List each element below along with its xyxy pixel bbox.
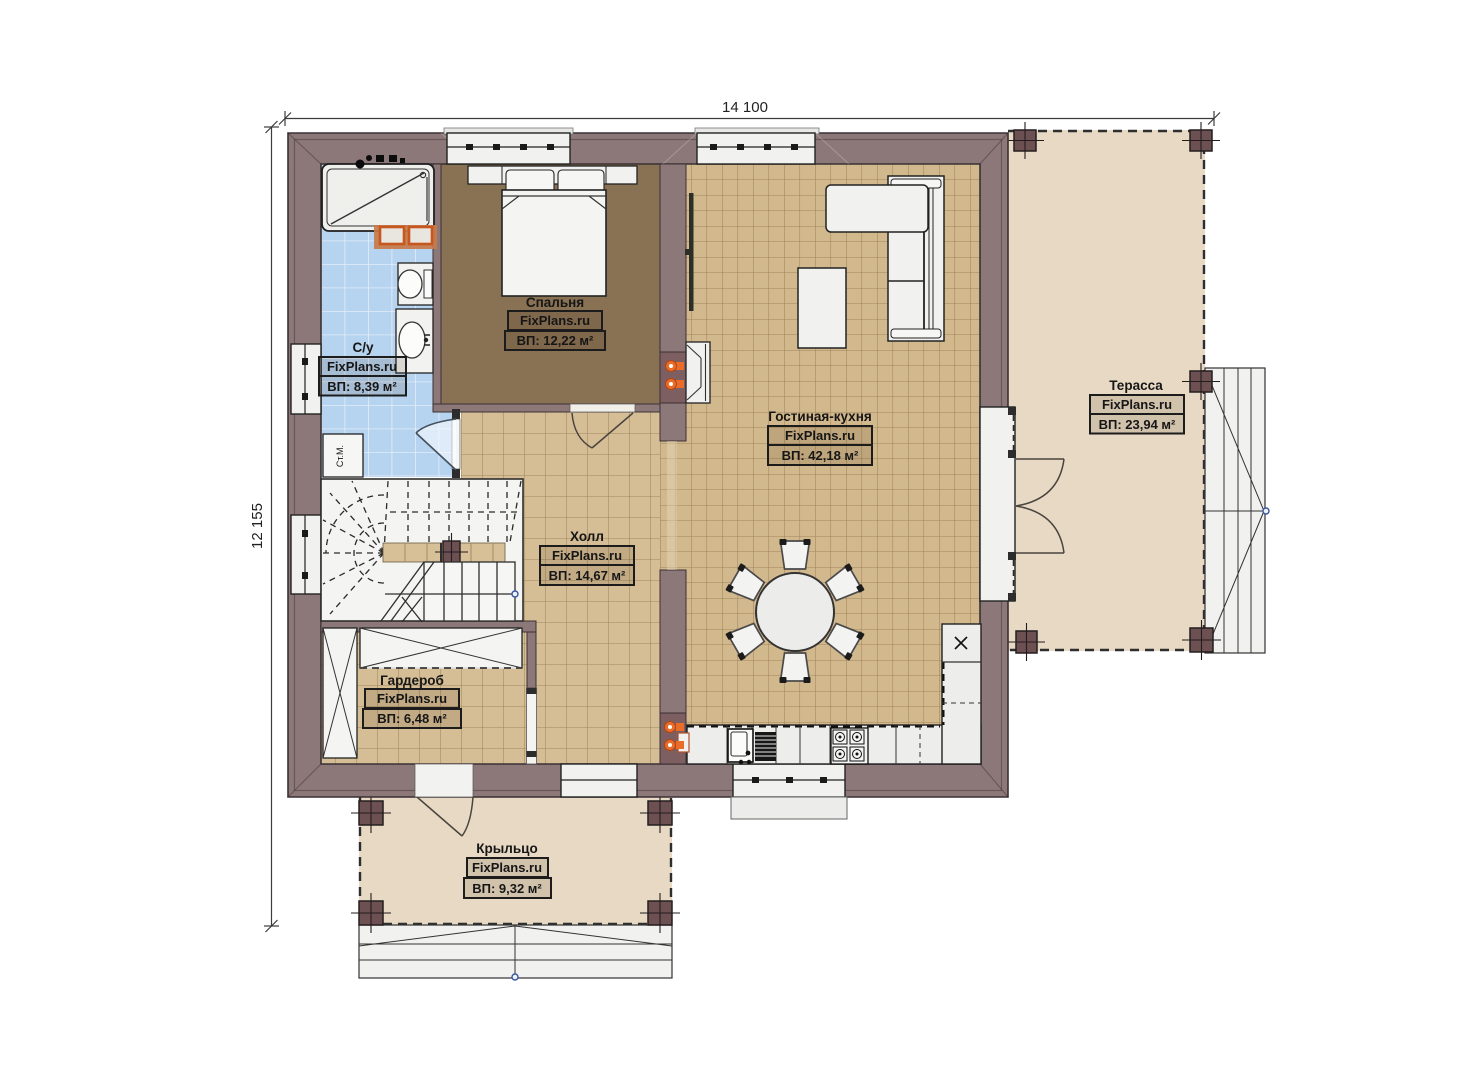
svg-text:ВП: 6,48 м²: ВП: 6,48 м² <box>377 711 447 726</box>
svg-text:FixPlans.ru: FixPlans.ru <box>552 548 622 563</box>
svg-text:ВП: 8,39 м²: ВП: 8,39 м² <box>327 379 397 394</box>
svg-text:ВП: 9,32 м²: ВП: 9,32 м² <box>472 881 542 896</box>
svg-text:С/у: С/у <box>352 340 374 355</box>
svg-text:ВП: 42,18 м²: ВП: 42,18 м² <box>782 448 859 463</box>
svg-text:Терасса: Терасса <box>1109 378 1163 393</box>
svg-text:FixPlans.ru: FixPlans.ru <box>1102 397 1172 412</box>
svg-text:Ст.М.: Ст.М. <box>335 445 345 467</box>
svg-text:Крыльцо: Крыльцо <box>476 841 537 856</box>
svg-text:Гардероб: Гардероб <box>380 673 444 688</box>
svg-text:ВП: 23,94 м²: ВП: 23,94 м² <box>1099 417 1176 432</box>
svg-text:FixPlans.ru: FixPlans.ru <box>327 359 397 374</box>
svg-text:14 100: 14 100 <box>722 99 768 116</box>
svg-text:FixPlans.ru: FixPlans.ru <box>785 428 855 443</box>
svg-text:FixPlans.ru: FixPlans.ru <box>520 313 590 328</box>
svg-text:ВП: 14,67 м²: ВП: 14,67 м² <box>549 568 626 583</box>
svg-text:FixPlans.ru: FixPlans.ru <box>377 691 447 706</box>
svg-text:FixPlans.ru: FixPlans.ru <box>472 860 542 875</box>
svg-text:Холл: Холл <box>570 529 604 544</box>
svg-text:Гостиная-кухня: Гостиная-кухня <box>768 409 871 424</box>
svg-text:12 155: 12 155 <box>249 503 266 549</box>
svg-text:Спальня: Спальня <box>526 295 584 310</box>
svg-text:ВП: 12,22 м²: ВП: 12,22 м² <box>517 333 594 348</box>
